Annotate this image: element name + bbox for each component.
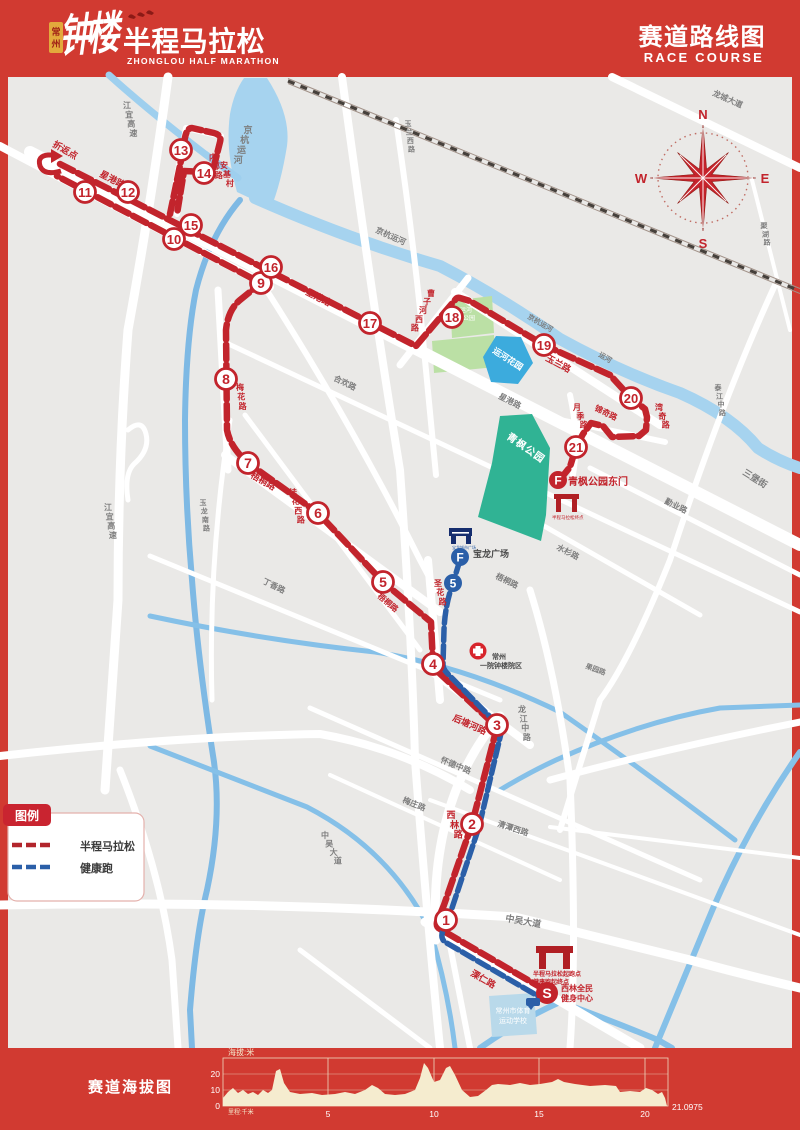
svg-text:运动学校: 运动学校 bbox=[499, 1016, 527, 1025]
svg-text:常州: 常州 bbox=[492, 652, 506, 661]
svg-text:5: 5 bbox=[326, 1109, 331, 1119]
svg-text:13: 13 bbox=[174, 143, 188, 158]
svg-text:赛道路线图: 赛道路线图 bbox=[638, 23, 767, 51]
svg-text:20: 20 bbox=[640, 1109, 650, 1119]
svg-text:20: 20 bbox=[211, 1069, 221, 1079]
svg-text:青枫公园东门: 青枫公园东门 bbox=[568, 475, 628, 488]
svg-text:16: 16 bbox=[264, 260, 278, 275]
svg-text:F: F bbox=[554, 474, 561, 488]
svg-text:RACE COURSE: RACE COURSE bbox=[644, 50, 764, 65]
svg-text:18: 18 bbox=[445, 310, 459, 325]
svg-text:里程:千米: 里程:千米 bbox=[228, 1108, 254, 1116]
svg-text:F: F bbox=[456, 551, 463, 565]
svg-text:海拔:米: 海拔:米 bbox=[228, 1047, 254, 1057]
svg-text:0: 0 bbox=[215, 1101, 220, 1111]
svg-text:健身中心: 健身中心 bbox=[561, 993, 593, 1003]
svg-text:14: 14 bbox=[197, 166, 212, 181]
svg-text:4: 4 bbox=[429, 656, 437, 672]
svg-text:10: 10 bbox=[167, 232, 181, 247]
svg-text:E: E bbox=[761, 171, 770, 186]
svg-text:5: 5 bbox=[450, 577, 457, 591]
svg-text:8: 8 bbox=[222, 371, 230, 387]
svg-text:图例: 图例 bbox=[15, 808, 39, 823]
svg-text:赛道海拔图: 赛道海拔图 bbox=[87, 1078, 173, 1096]
svg-text:2: 2 bbox=[468, 816, 476, 832]
svg-text:健康跑: 健康跑 bbox=[80, 861, 113, 875]
svg-text:S: S bbox=[542, 985, 551, 1001]
svg-text:半程马拉松终点: 半程马拉松终点 bbox=[552, 514, 584, 521]
svg-text:19: 19 bbox=[537, 338, 551, 353]
svg-text:西林全民: 西林全民 bbox=[561, 983, 593, 993]
svg-text:7: 7 bbox=[244, 455, 252, 471]
svg-text:10: 10 bbox=[211, 1085, 221, 1095]
svg-text:半程马拉松: 半程马拉松 bbox=[123, 25, 265, 57]
svg-text:常州市体育: 常州市体育 bbox=[496, 1006, 531, 1015]
svg-text:3: 3 bbox=[493, 717, 501, 733]
svg-text:21.0975: 21.0975 bbox=[672, 1102, 703, 1112]
svg-text:W: W bbox=[635, 171, 648, 186]
svg-text:ZHONGLOU HALF MARATHON: ZHONGLOU HALF MARATHON bbox=[127, 56, 280, 66]
svg-text:17: 17 bbox=[363, 316, 377, 331]
svg-text:半程马拉松起跑点: 半程马拉松起跑点 bbox=[533, 970, 581, 978]
svg-text:5: 5 bbox=[379, 574, 387, 590]
svg-text:一院钟楼院区: 一院钟楼院区 bbox=[480, 661, 522, 670]
svg-text:6: 6 bbox=[314, 505, 322, 521]
svg-text:15: 15 bbox=[534, 1109, 544, 1119]
svg-text:12: 12 bbox=[121, 185, 135, 200]
svg-text:20: 20 bbox=[624, 391, 638, 406]
svg-text:N: N bbox=[698, 107, 707, 122]
svg-text:S: S bbox=[699, 236, 708, 251]
svg-text:钟楼: 钟楼 bbox=[59, 8, 125, 62]
svg-text:9: 9 bbox=[257, 275, 265, 291]
svg-text:11: 11 bbox=[78, 185, 92, 200]
svg-text:1: 1 bbox=[442, 912, 450, 928]
svg-text:宝龙广场: 宝龙广场 bbox=[473, 548, 509, 559]
svg-text:15: 15 bbox=[184, 218, 198, 233]
svg-text:10: 10 bbox=[429, 1109, 439, 1119]
svg-text:21: 21 bbox=[569, 440, 583, 455]
svg-text:半程马拉松: 半程马拉松 bbox=[80, 839, 135, 853]
